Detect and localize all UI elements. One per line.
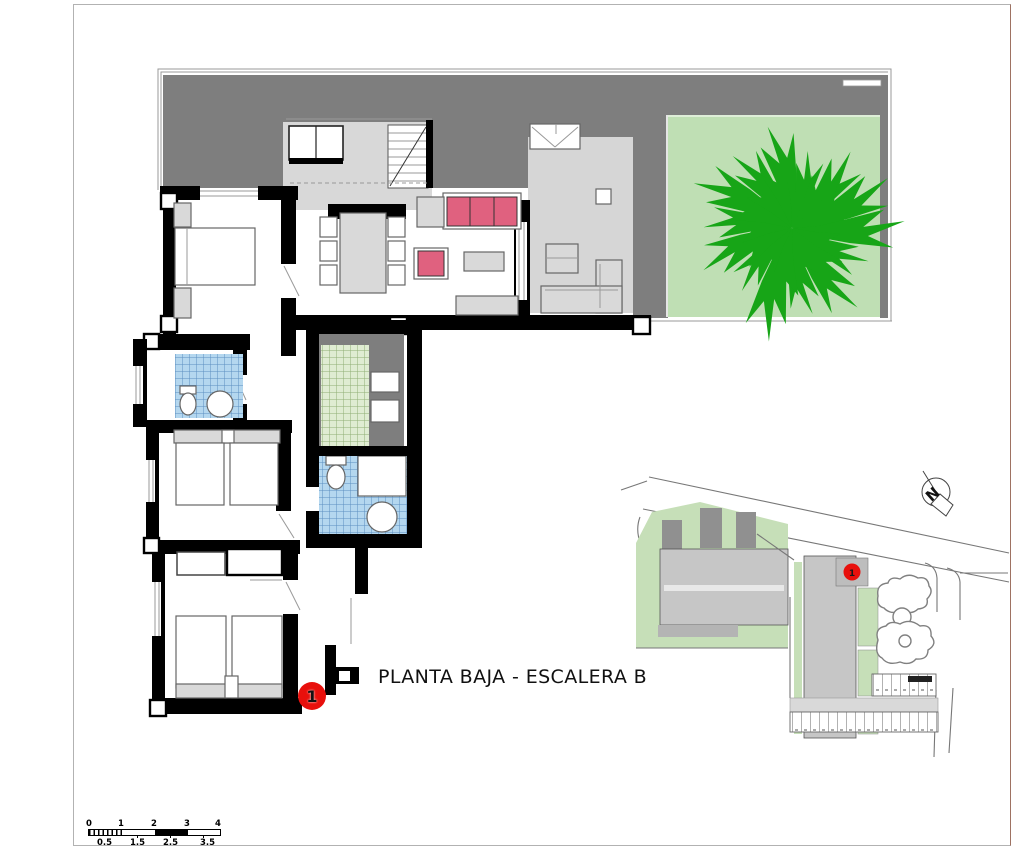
covered-terrace <box>528 124 633 313</box>
roof-vent <box>843 80 881 86</box>
scale-label: 1.5 <box>130 838 145 848</box>
washbasin <box>367 502 397 532</box>
site-plan: 1 N <box>621 471 1009 757</box>
scale-label: 0.5 <box>97 838 112 848</box>
scale-bar-graphic <box>88 829 221 836</box>
pink-armchair <box>414 248 448 279</box>
plan-title: PLANTA BAJA - ESCALERA B <box>378 666 647 688</box>
bedside-table <box>222 430 234 443</box>
kitchen-floor <box>321 345 369 448</box>
site-unit-marker: 1 <box>844 564 861 581</box>
scale-label: 4 <box>215 819 221 829</box>
scale-bar: 0 1 2 3 4 0.5 1.5 2.5 3.5 <box>88 819 228 847</box>
scale-label: 1 <box>118 819 124 829</box>
footboard <box>232 684 282 698</box>
kitchen-block <box>306 320 422 548</box>
bedside-table <box>225 676 238 698</box>
unit-number: 1 <box>306 687 317 706</box>
sideboard <box>456 296 518 315</box>
stair-entry-block <box>283 119 433 210</box>
double-bed <box>175 228 255 285</box>
washbasin <box>207 391 233 417</box>
armchair <box>417 197 444 227</box>
compass-icon: N <box>922 471 953 516</box>
shower <box>358 456 406 496</box>
scale-label: 2.5 <box>163 838 178 848</box>
nightstand <box>174 288 191 318</box>
outdoor-table <box>546 244 578 273</box>
dining-table <box>340 213 386 293</box>
kitchen-appliance <box>371 372 399 392</box>
staircase <box>388 120 433 188</box>
floorplan-page: 1 N PLANTA BAJA - <box>0 0 1024 852</box>
scale-label: 3 <box>184 819 190 829</box>
bedroom-2 <box>174 430 280 505</box>
site-unit-marker-number: 1 <box>849 569 855 579</box>
footboard <box>176 684 226 698</box>
scale-label: 0 <box>86 819 92 829</box>
side-table <box>596 189 611 204</box>
sofa <box>443 193 521 229</box>
toilet <box>180 386 196 415</box>
single-bed <box>230 443 278 505</box>
dining-set <box>320 213 405 293</box>
bathroom-2 <box>319 456 407 534</box>
coffee-table <box>464 252 504 271</box>
scale-label: 3.5 <box>200 838 215 848</box>
toilet <box>326 456 346 489</box>
pool-upper <box>878 575 931 612</box>
scale-label: 2 <box>151 819 157 829</box>
wardrobe <box>227 549 282 575</box>
plan-drawing: 1 N <box>0 0 1024 852</box>
kitchen-appliance <box>371 400 399 422</box>
single-bed <box>232 616 282 688</box>
bedroom-3 <box>176 549 282 698</box>
bedroom-1 <box>174 203 255 318</box>
pool-area <box>877 575 934 663</box>
single-bed <box>176 443 224 505</box>
bathroom-1 <box>175 354 243 418</box>
nightstand <box>174 203 191 227</box>
sun-lounger <box>530 124 580 149</box>
unit-number-badge: 1 <box>298 682 326 710</box>
left-building-cluster <box>636 502 788 648</box>
entry-cabinet <box>289 126 343 164</box>
wardrobe <box>177 552 225 575</box>
single-bed <box>176 616 226 688</box>
main-floor-plan <box>133 69 905 716</box>
